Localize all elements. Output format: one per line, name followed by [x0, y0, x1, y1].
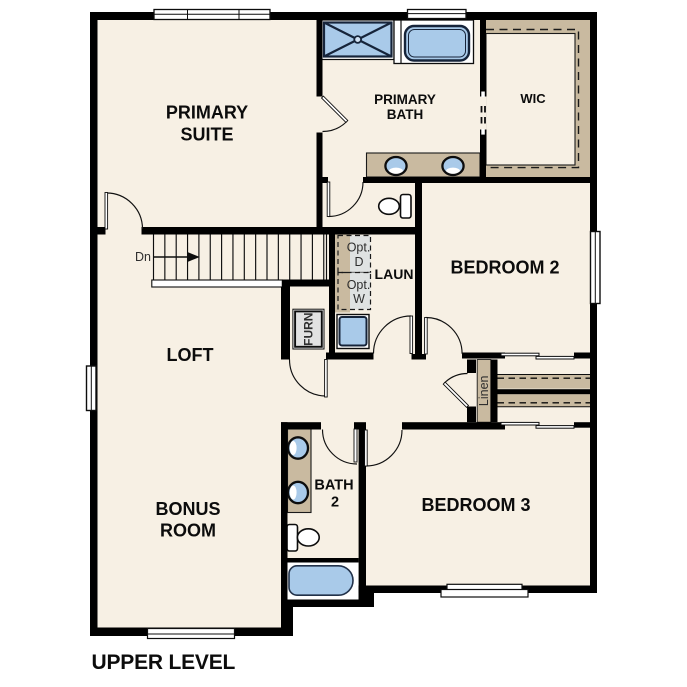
svg-text:LAUN: LAUN [375, 266, 414, 282]
svg-text:UPPER LEVEL: UPPER LEVEL [92, 651, 236, 674]
svg-text:D: D [354, 255, 363, 269]
svg-text:PRIMARY: PRIMARY [166, 103, 248, 123]
svg-text:FURN: FURN [302, 313, 316, 346]
svg-text:Opt.: Opt. [347, 241, 371, 255]
svg-text:2: 2 [331, 495, 339, 511]
svg-text:BEDROOM 3: BEDROOM 3 [421, 495, 530, 515]
svg-text:LOFT: LOFT [167, 345, 214, 365]
svg-text:PRIMARY: PRIMARY [374, 92, 436, 107]
svg-text:WIC: WIC [520, 91, 546, 106]
svg-text:ROOM: ROOM [160, 521, 216, 541]
svg-text:SUITE: SUITE [180, 124, 233, 144]
svg-text:BEDROOM 2: BEDROOM 2 [450, 258, 559, 278]
svg-text:W: W [353, 292, 365, 306]
svg-text:BATH: BATH [387, 107, 424, 122]
svg-text:BONUS: BONUS [155, 499, 220, 519]
svg-text:Dn: Dn [135, 250, 151, 264]
svg-text:Opt.: Opt. [347, 278, 371, 292]
svg-text:BATH: BATH [314, 478, 353, 494]
svg-text:Linen: Linen [477, 375, 491, 406]
